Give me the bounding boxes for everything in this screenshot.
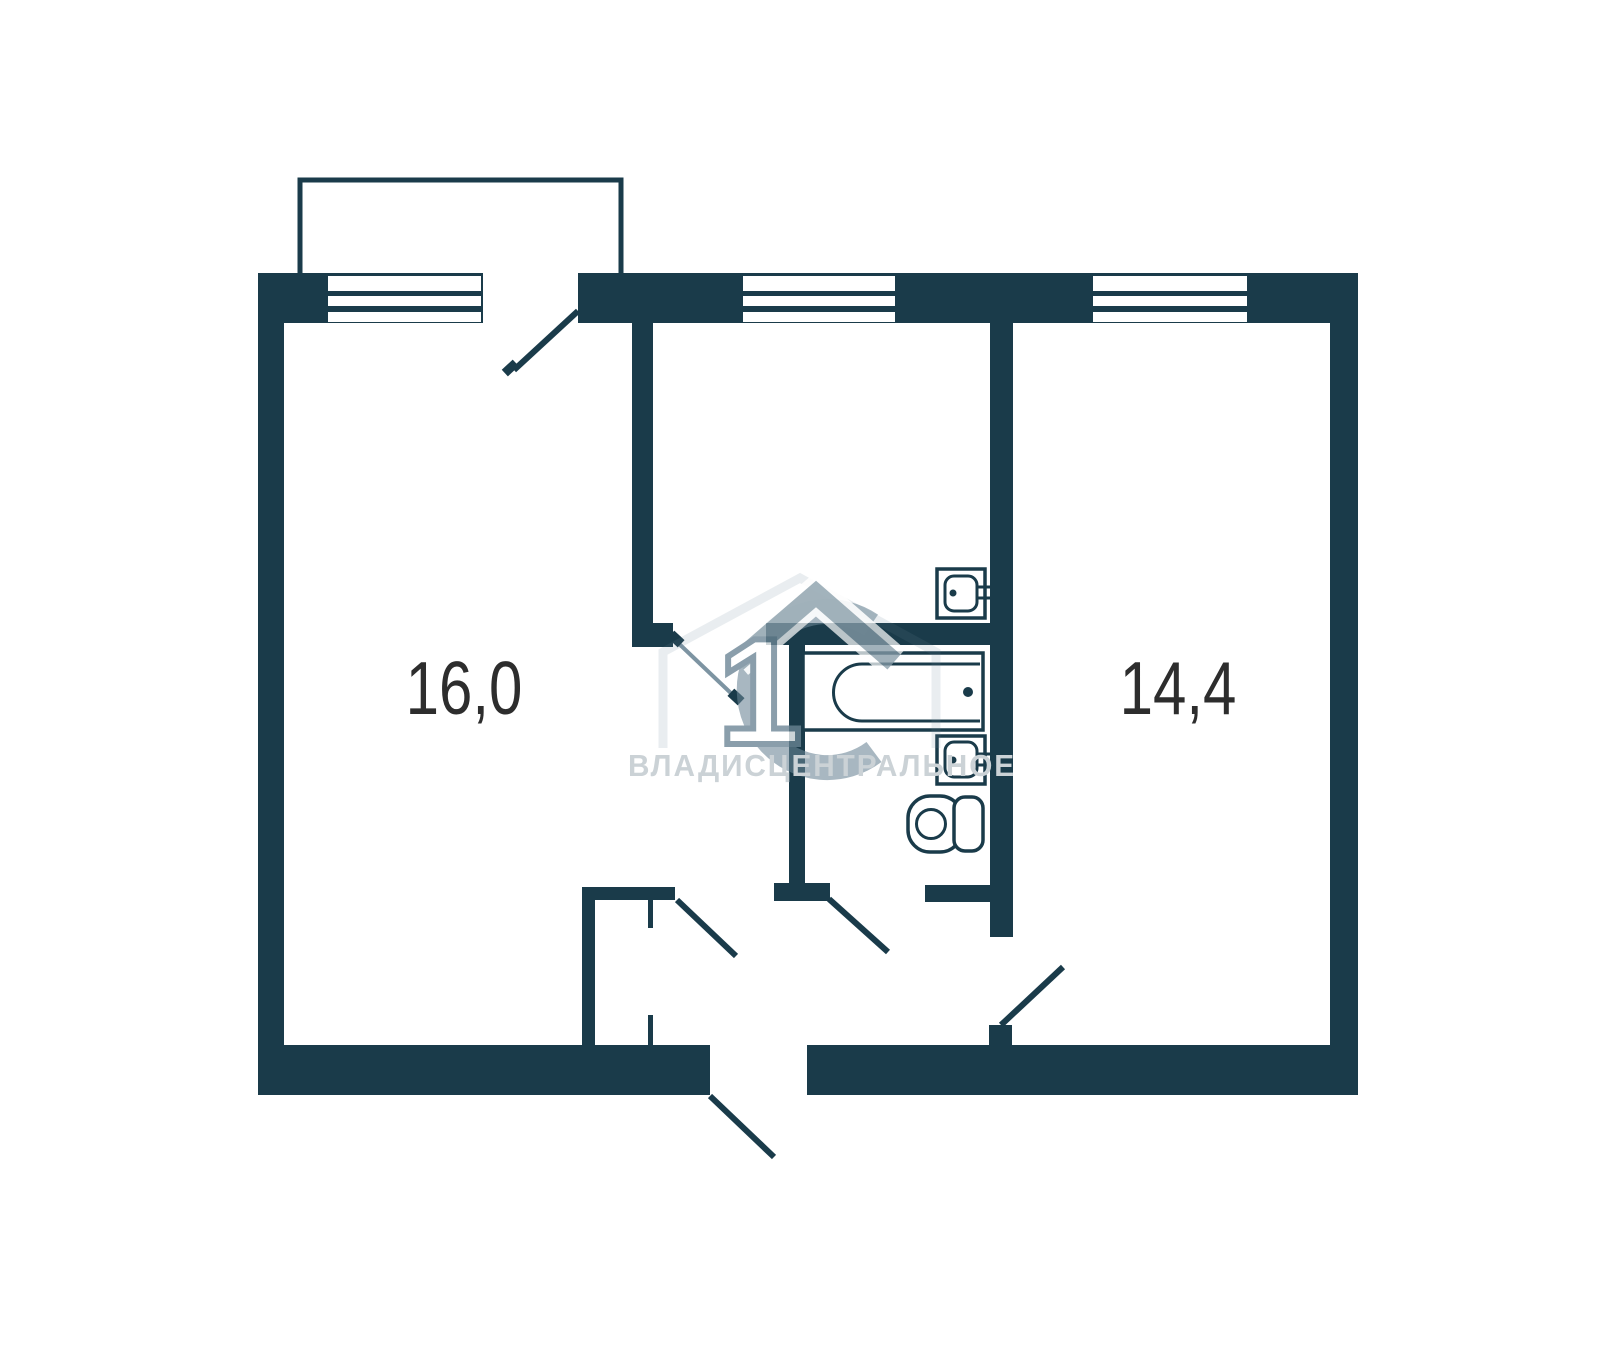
closet-jamb-top <box>648 900 653 928</box>
rightroom-door-swing <box>1001 967 1063 1025</box>
bathtub <box>803 653 983 730</box>
closet-jamb-bottom <box>648 1015 653 1045</box>
watermark-text: ВЛАДИСЦЕНТРАЛЬНОЕ <box>628 748 1016 784</box>
window-symbol-left-room <box>328 276 481 322</box>
closet-wall-top <box>582 887 675 900</box>
room-area-label-right: 14,4 <box>1120 645 1237 731</box>
entrance-door-swing <box>710 1096 774 1157</box>
closet-door-swing <box>677 900 736 956</box>
balcony-outline <box>300 180 621 277</box>
window-symbol-right-room <box>1093 276 1247 322</box>
floor-plan-drawing: 1 <box>0 0 1600 1368</box>
toilet <box>908 796 983 852</box>
bathroom-door-swing <box>829 899 888 952</box>
kitchen-sink <box>937 569 990 618</box>
window-symbol-kitchen <box>743 276 895 322</box>
wall-leftroom-kitchen <box>632 323 653 647</box>
wall-bathroom-rightroom <box>990 323 1013 937</box>
closet-wall-left <box>582 887 595 1047</box>
wall-leftroom-kitchen-stub <box>632 623 673 647</box>
wall-bathroom-door-left-stub <box>774 883 830 901</box>
bottom-wall-right <box>807 1045 1358 1095</box>
wall-bathroom-door-right-stub <box>925 885 990 902</box>
balcony-door-handle <box>502 360 519 377</box>
room-area-label-left: 16,0 <box>406 645 523 731</box>
bottom-wall-left <box>258 1045 710 1095</box>
balcony-door-opening <box>483 272 578 324</box>
wall-rightroom-door-stub <box>989 1025 1012 1045</box>
left-wall <box>258 273 284 1095</box>
right-wall <box>1330 273 1358 1095</box>
floor-plan-canvas: 1 16,0 14,4 ВЛАДИСЦЕНТРАЛЬНОЕ <box>0 0 1600 1368</box>
